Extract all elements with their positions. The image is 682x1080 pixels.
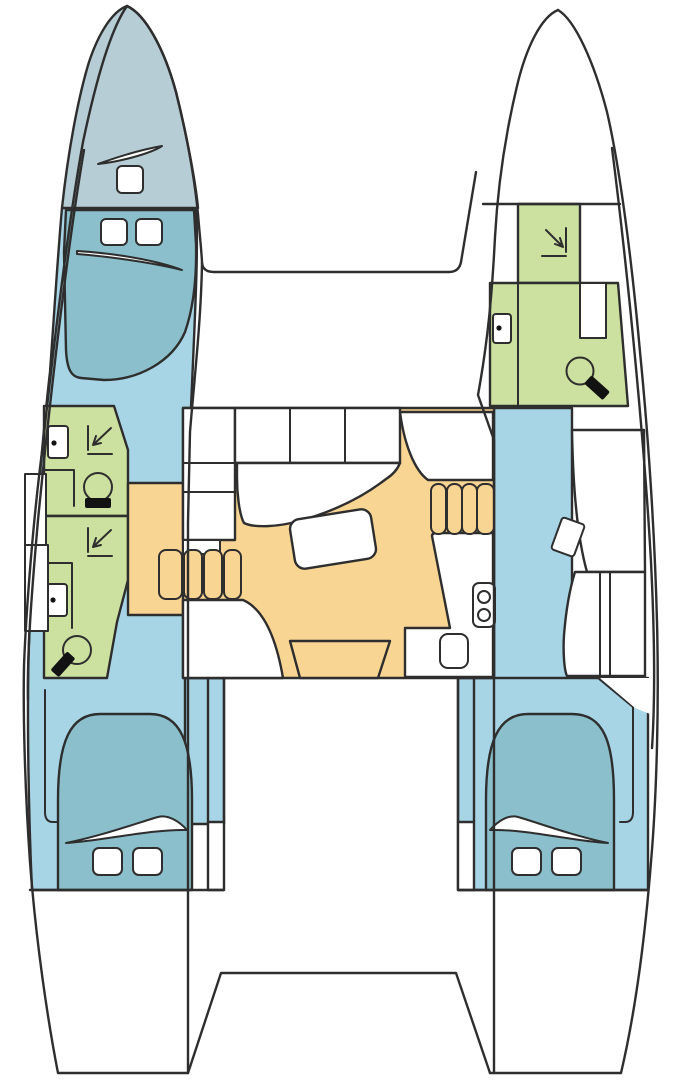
bow-hatch [117,166,143,193]
washbasin [47,584,67,616]
aft-berth [486,714,614,890]
stair-tread [477,484,494,534]
stair-tread [159,550,182,599]
cockpit-side-wall [208,678,474,822]
wardrobe [564,572,645,676]
stair-tread [447,484,462,534]
starboard-steps [431,484,494,534]
deck-hatch [101,219,127,245]
pillow [552,848,581,875]
toilet [84,473,112,501]
washbasin-drain [496,325,501,330]
washbasin-drain [51,440,56,445]
stair-tread [224,550,241,599]
pillow [93,848,122,875]
washbasin [493,314,511,343]
pillow [512,848,541,875]
stove-burner [478,609,490,621]
catamaran-floor-plan [0,0,682,1080]
deck-hatch [136,219,162,245]
foredeck-edge [202,172,476,272]
washbasin-drain [50,597,55,602]
shower-stall [518,204,580,283]
port-forward-bathroom [44,406,128,516]
washbasin [48,426,68,458]
cabinet [580,283,606,338]
floor-plan-canvas [0,0,682,1080]
galley-sink [440,634,468,668]
stair-tread [431,484,446,534]
cockpit-door [290,641,390,678]
transom-platform-edge [188,973,490,1073]
forward-cabinets [235,408,400,463]
starboard-bathroom [483,204,628,406]
nav-desk [572,430,645,572]
pillow [133,848,162,875]
stair-tread [184,550,202,599]
wall-pocket [208,822,224,890]
toilet-seat [85,498,111,508]
port-steps [159,550,241,599]
port-forepeak [62,6,198,208]
wall-pocket [458,822,474,890]
stair-tread [462,484,477,534]
aft-berth [58,714,192,890]
bathroom-area [490,283,628,406]
saloon [183,408,495,678]
stove-burner [478,591,490,603]
stair-tread [204,550,222,599]
